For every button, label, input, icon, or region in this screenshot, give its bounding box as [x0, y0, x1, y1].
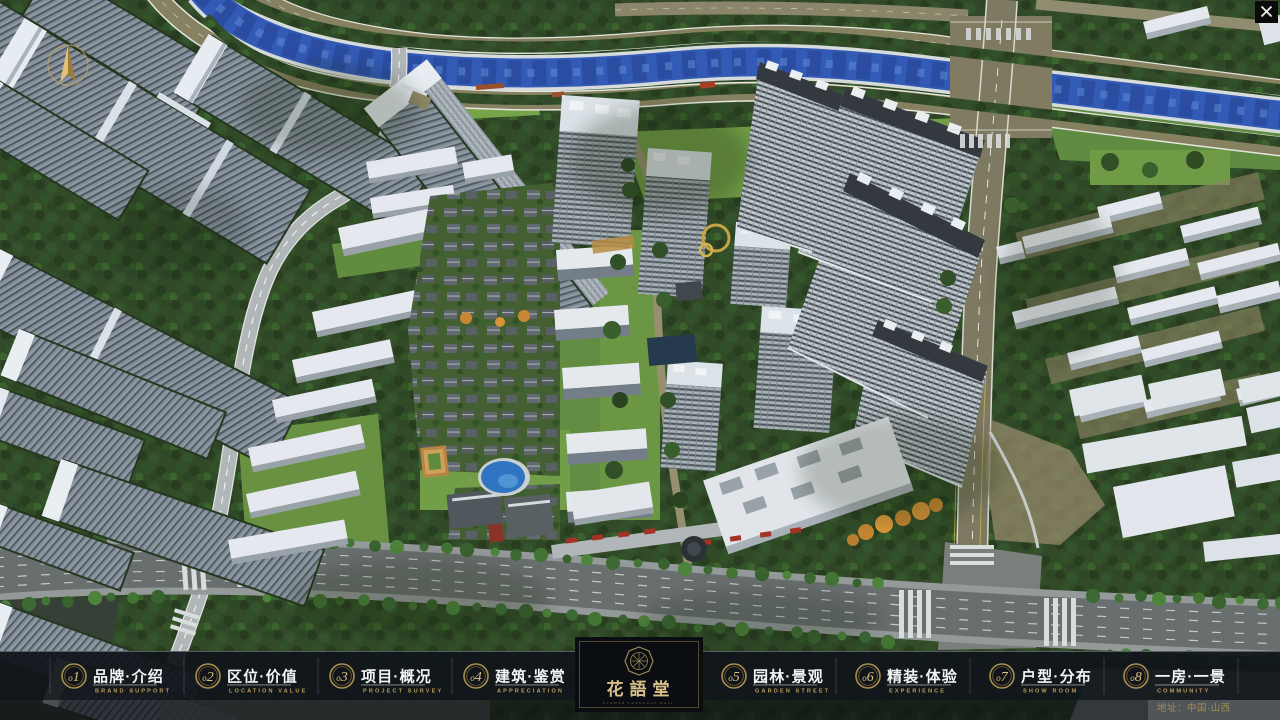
svg-text:o3: o3 — [336, 670, 348, 685]
svg-text:o7: o7 — [996, 670, 1009, 685]
svg-text:o2: o2 — [202, 670, 214, 685]
svg-text:o1: o1 — [68, 670, 80, 685]
svg-text:精装·体验: 精装·体验 — [887, 668, 958, 686]
svg-text:o5: o5 — [728, 670, 740, 685]
svg-text:o8: o8 — [1130, 670, 1142, 685]
svg-text:PROJECT SURVEY: PROJECT SURVEY — [363, 689, 443, 695]
svg-text:花語堂: 花語堂 — [607, 679, 676, 699]
svg-text:APPRECIATION: APPRECIATION — [497, 689, 564, 695]
svg-text:o4: o4 — [470, 670, 482, 685]
svg-text:EXPERIENCE: EXPERIENCE — [889, 689, 946, 695]
svg-text:品牌·介绍: 品牌·介绍 — [93, 668, 164, 686]
svg-text:建筑·鉴赏: 建筑·鉴赏 — [495, 668, 566, 686]
svg-text:园林·景观: 园林·景观 — [753, 668, 824, 686]
svg-text:GARDEN STREET: GARDEN STREET — [755, 689, 830, 695]
svg-text:地址：中国·山西: 地址：中国·山西 — [1157, 702, 1231, 714]
svg-text:BRAND SUPPORT: BRAND SUPPORT — [95, 689, 171, 695]
svg-text:FLOWER LANGUAGE HALL: FLOWER LANGUAGE HALL — [603, 701, 675, 705]
svg-text:项目·概况: 项目·概况 — [361, 668, 432, 686]
svg-text:o6: o6 — [862, 670, 874, 685]
svg-text:COMMUNITY: COMMUNITY — [1157, 689, 1210, 695]
svg-text:LOCATION VALUE: LOCATION VALUE — [229, 689, 307, 695]
svg-text:SHOW ROOM: SHOW ROOM — [1023, 689, 1078, 695]
svg-text:一房·一景: 一房·一景 — [1155, 668, 1226, 686]
svg-text:区位·价值: 区位·价值 — [227, 668, 298, 686]
svg-text:户型·分布: 户型·分布 — [1021, 668, 1092, 686]
